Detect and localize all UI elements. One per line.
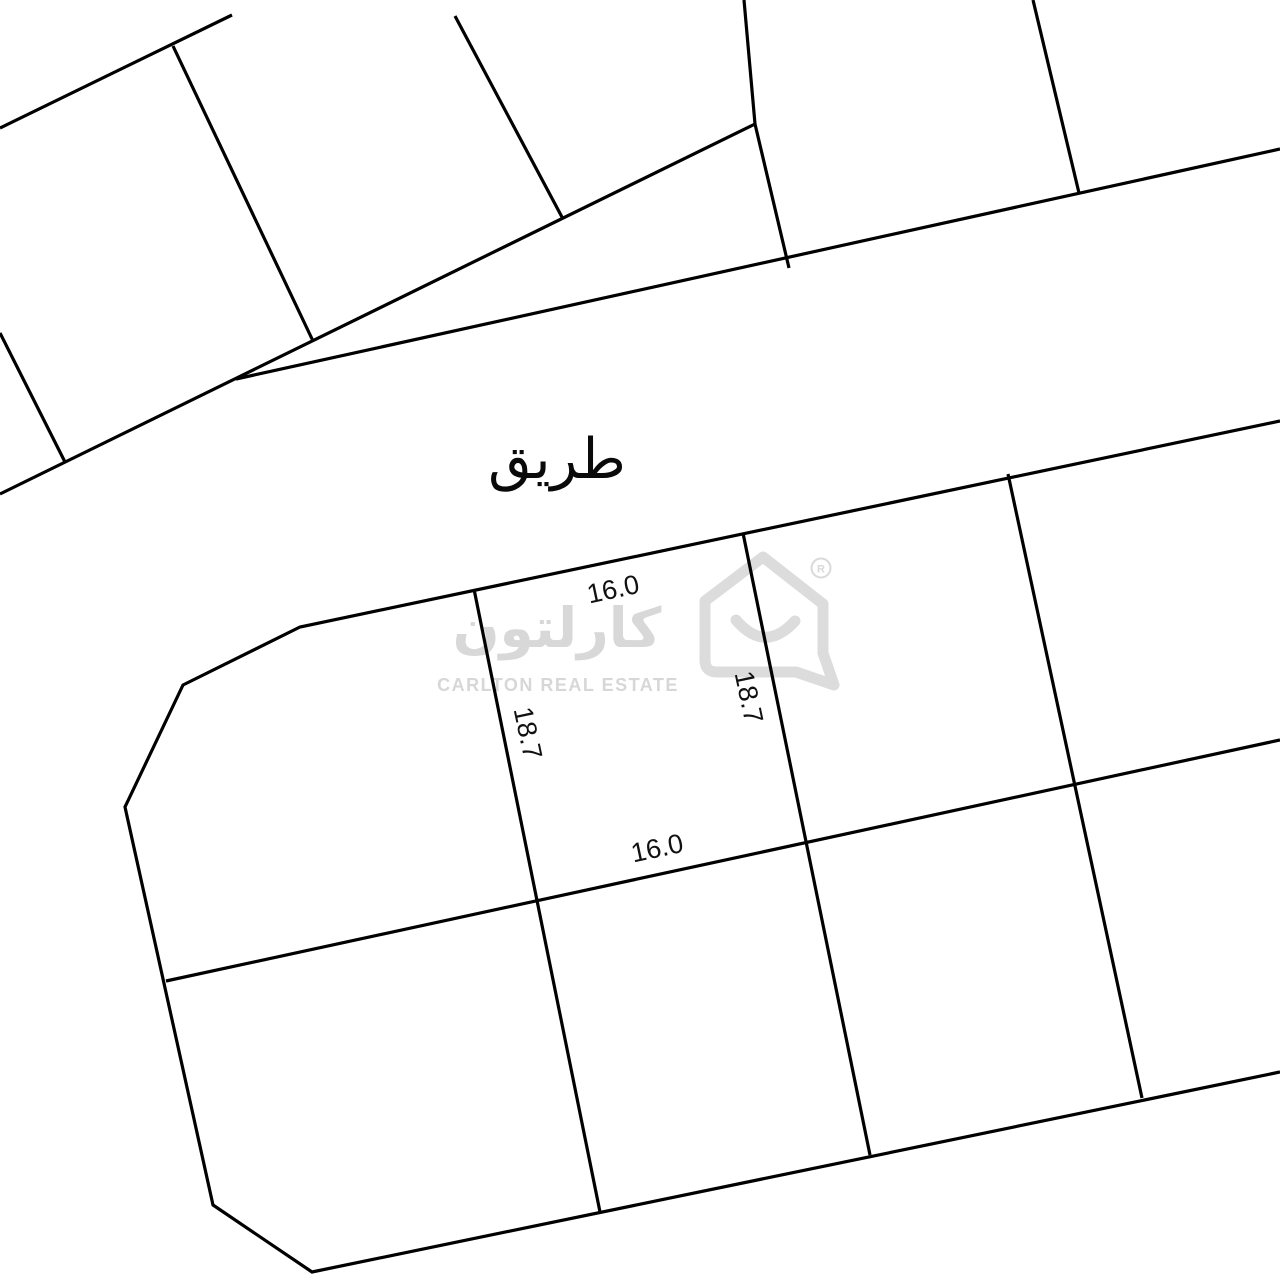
registered-trademark-icon: R xyxy=(812,559,831,578)
upper-center-plot-divider xyxy=(744,0,789,268)
upper-left-block-top-boundary xyxy=(0,15,232,128)
upper-left-block-bottom-boundary xyxy=(0,124,755,494)
upper-right-plot-divider xyxy=(1033,0,1079,193)
road-label: طريق xyxy=(488,427,626,492)
registered-trademark-letter: R xyxy=(817,564,825,576)
plot-map: كارلتون CARLTON REAL ESTATE R طريق 16.0 … xyxy=(0,0,1280,1277)
road-upper-edge xyxy=(236,149,1280,379)
lower-right-plot-divider xyxy=(1008,474,1142,1098)
lower-block-outline xyxy=(125,421,1280,1272)
central-plot-right-boundary xyxy=(743,533,870,1155)
upper-middle-plot-divider xyxy=(455,16,563,219)
lower-block-middle-line xyxy=(166,740,1280,981)
dimension-label-bottom-frontage: 16.0 xyxy=(628,828,686,868)
dimension-label-left-depth: 18.7 xyxy=(508,704,548,762)
upper-left-short-divider xyxy=(0,333,65,462)
watermark-tagline: CARLTON REAL ESTATE xyxy=(437,675,679,695)
upper-left-plot-divider xyxy=(173,46,313,341)
plot-map-canvas: كارلتون CARLTON REAL ESTATE R طريق 16.0 … xyxy=(0,0,1280,1277)
watermark-arabic-logotype: كارلتون xyxy=(453,596,662,661)
